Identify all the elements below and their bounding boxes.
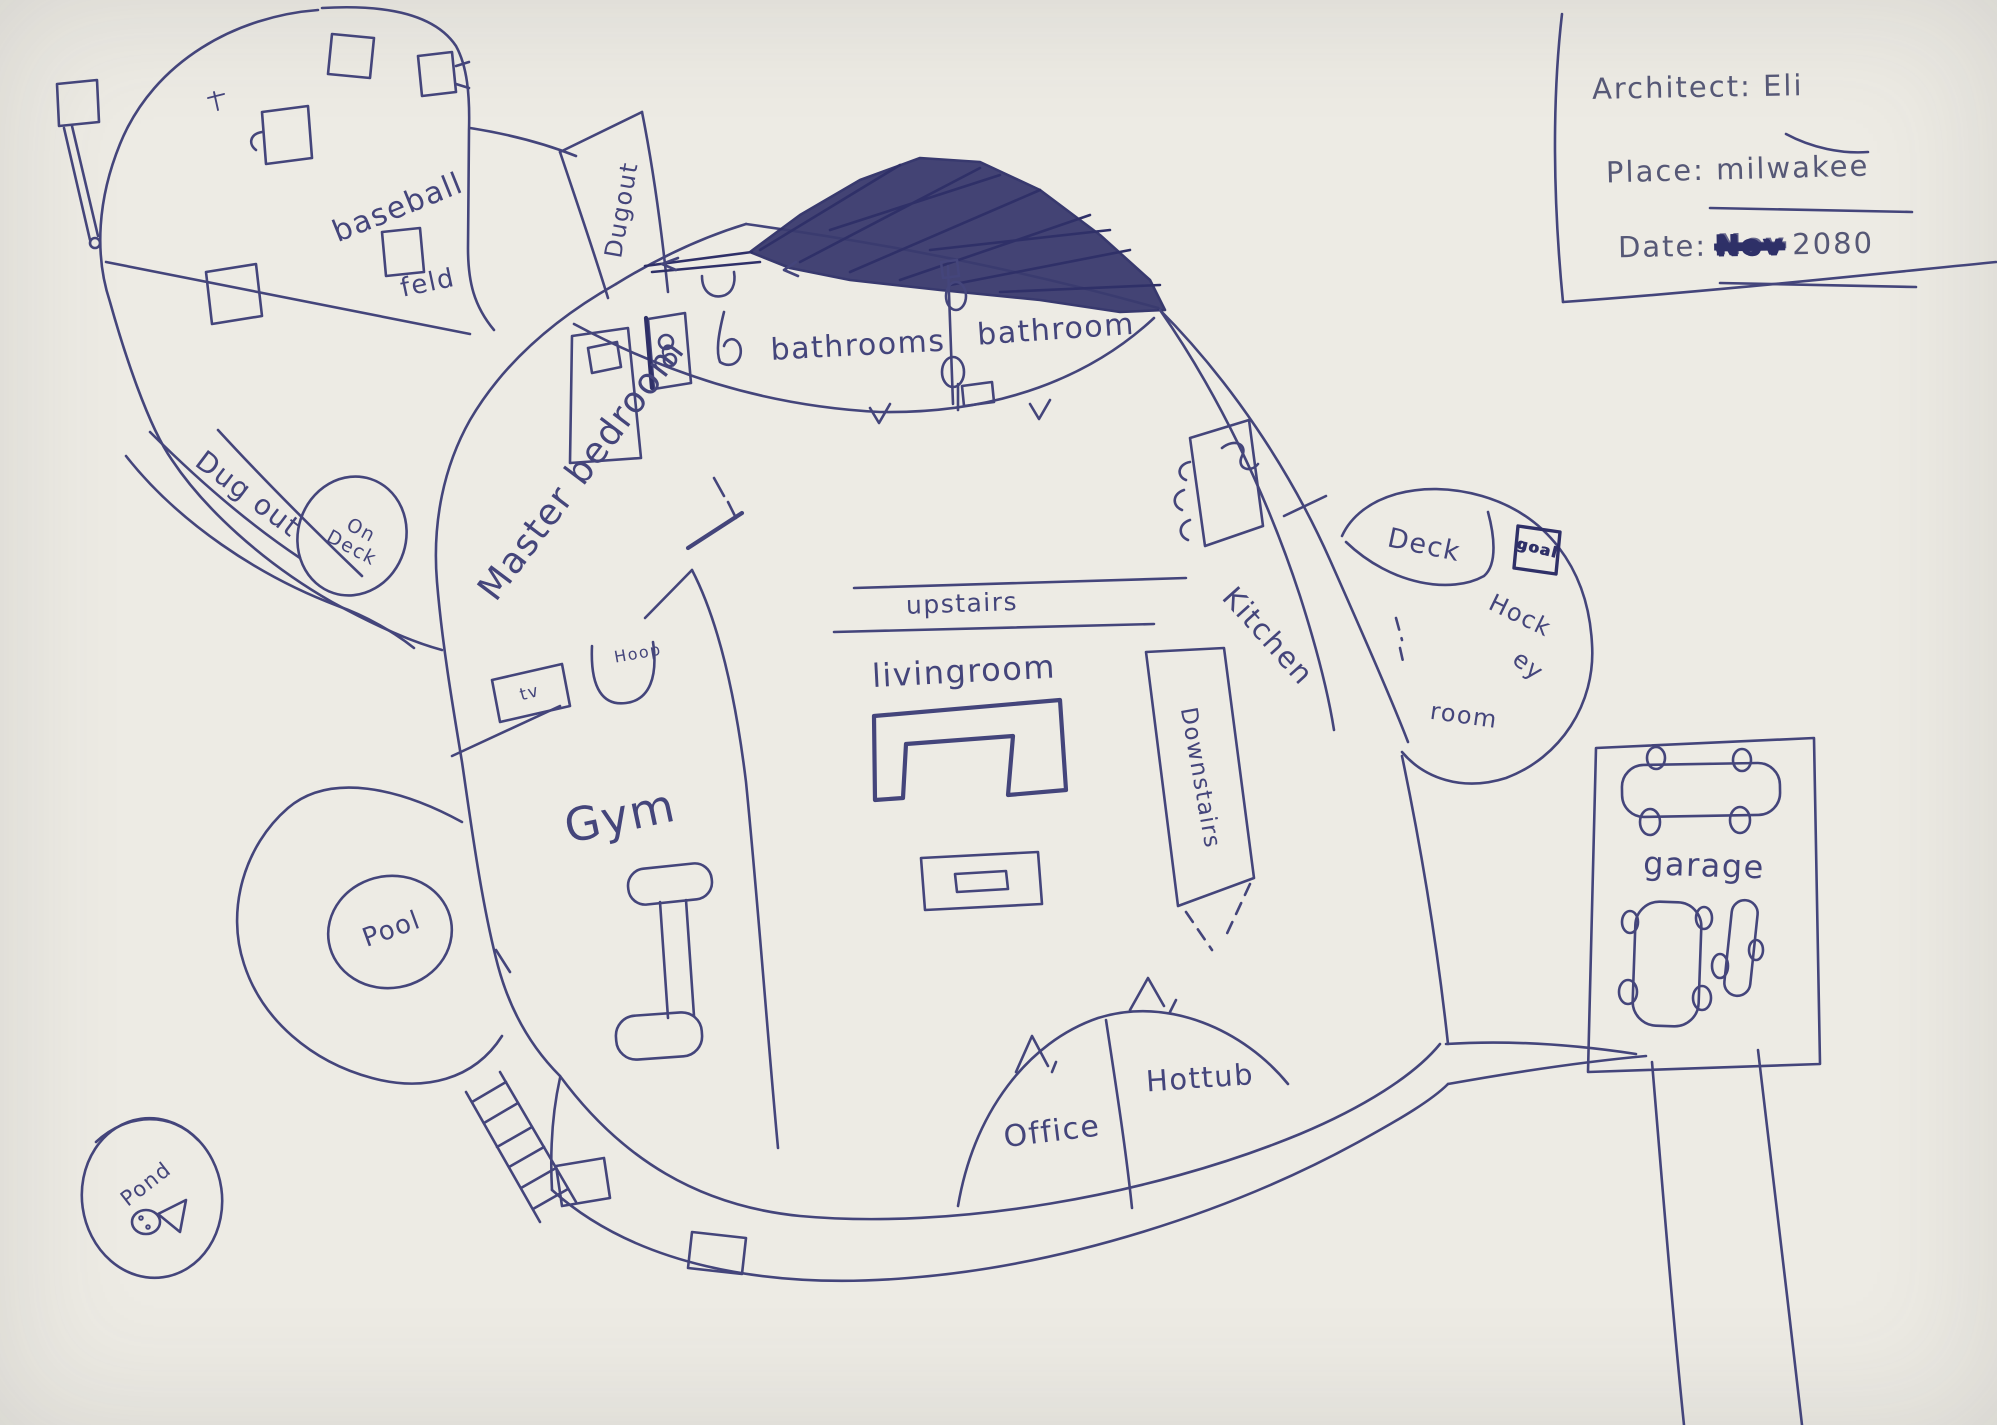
hockey-room-drawing bbox=[1342, 489, 1592, 784]
floor-plan-drawing bbox=[0, 0, 1997, 1425]
baseball-field-drawing-stroke bbox=[208, 92, 224, 110]
pond-drawing-stroke bbox=[158, 1200, 186, 1232]
house-outline-stroke bbox=[1402, 756, 1448, 1044]
date-month-scribbled: Nov bbox=[1715, 227, 1785, 262]
garage-drawing-stroke bbox=[1693, 986, 1711, 1010]
title-place-row: Place: milwakee bbox=[1606, 149, 1870, 190]
gym-drawing bbox=[452, 642, 714, 1061]
label-hottub: Hottub bbox=[1145, 1059, 1255, 1097]
walkway-drawing-stroke bbox=[1446, 1042, 1636, 1054]
office-hottub-drawing-stroke bbox=[958, 1011, 1288, 1206]
fish-drawing bbox=[132, 1210, 160, 1234]
title-date-row: Date:Nov2080 bbox=[1618, 226, 1875, 264]
bike-drawing bbox=[1723, 899, 1759, 997]
master-bedroom-drawing-stroke bbox=[714, 478, 736, 518]
master-bedroom-drawing-stroke bbox=[692, 570, 778, 1148]
garage-drawing bbox=[1588, 738, 1820, 1072]
scribble-shading bbox=[645, 158, 1165, 312]
paper-sheet: baseball feld Dugout Dug out On Deck Mas… bbox=[0, 0, 1997, 1425]
kitchen-drawing-stroke bbox=[1284, 496, 1326, 516]
office-hottub-drawing-stroke bbox=[1106, 1020, 1132, 1208]
dugout-top-band-stroke bbox=[560, 112, 642, 152]
pond-drawing-stroke bbox=[146, 1225, 150, 1229]
title-box-frame-stroke bbox=[1555, 14, 1563, 302]
house-outline-stroke bbox=[616, 224, 746, 284]
baseball-field-drawing-stroke bbox=[100, 10, 442, 650]
office-hottub-drawing-stroke bbox=[1130, 978, 1176, 1012]
label-garage: garage bbox=[1643, 847, 1766, 885]
title-box-frame-stroke bbox=[1710, 208, 1912, 212]
base-square bbox=[418, 52, 456, 96]
pond-drawing-stroke bbox=[96, 1119, 198, 1142]
title-architect-row: Architect: Eli bbox=[1592, 68, 1804, 106]
baseball-field-drawing-stroke bbox=[64, 126, 98, 240]
walkway-drawing-stroke bbox=[552, 1084, 1448, 1281]
baseball-field-drawing-stroke bbox=[90, 238, 100, 248]
pond-drawing-stroke bbox=[139, 1216, 143, 1220]
base-square bbox=[382, 228, 424, 276]
pillow-drawing bbox=[588, 342, 621, 373]
label-upstairs: upstairs bbox=[906, 589, 1019, 619]
office-hottub-drawing bbox=[958, 978, 1288, 1208]
car-drawing bbox=[1632, 901, 1702, 1027]
bathrooms-drawing-stroke bbox=[702, 272, 735, 296]
place-label: Place: bbox=[1606, 153, 1706, 190]
house-outline-stroke bbox=[560, 1044, 1440, 1219]
pond-drawing bbox=[72, 1109, 233, 1287]
master-bedroom-drawing-stroke bbox=[688, 513, 742, 548]
walkway-drawing bbox=[551, 1042, 1646, 1280]
driveway-drawing-stroke bbox=[1758, 1050, 1802, 1425]
architect-label: Architect: bbox=[1592, 69, 1752, 106]
bathrooms-drawing-stroke bbox=[962, 382, 994, 406]
driveway-drawing-stroke bbox=[1652, 1062, 1684, 1425]
baseball-field-drawing-stroke bbox=[251, 132, 262, 150]
gym-drawing-stroke bbox=[452, 706, 560, 756]
master-bedroom-drawing-stroke bbox=[645, 570, 692, 618]
living-room-drawing bbox=[834, 578, 1186, 910]
base-square bbox=[262, 106, 312, 164]
barbell-drawing bbox=[626, 862, 713, 907]
bathrooms-drawing-stroke bbox=[718, 312, 741, 365]
kitchen-drawing-stroke bbox=[1175, 462, 1190, 540]
date-year: 2080 bbox=[1792, 226, 1874, 261]
date-label: Date: bbox=[1618, 229, 1708, 265]
gym-drawing-stroke bbox=[615, 1011, 704, 1061]
flag-drawing bbox=[57, 80, 99, 126]
living-room-drawing-stroke bbox=[955, 871, 1008, 892]
pond-drawing-stroke bbox=[72, 1109, 233, 1287]
stove-drawing bbox=[1190, 420, 1263, 546]
title-box-frame-stroke bbox=[1563, 262, 1996, 302]
house-outline-stroke bbox=[436, 284, 616, 1076]
driveway-drawing bbox=[1652, 1050, 1802, 1425]
couch-drawing bbox=[874, 700, 1066, 800]
garage-drawing-stroke bbox=[1730, 807, 1750, 833]
garage-drawing-stroke bbox=[1640, 809, 1660, 835]
garage-drawing-stroke bbox=[1733, 749, 1751, 771]
dugout-top-band-stroke bbox=[560, 152, 608, 298]
garage-drawing-stroke bbox=[1749, 940, 1763, 960]
hockey-room-drawing-stroke bbox=[1342, 489, 1592, 784]
downstairs-band-stroke bbox=[1186, 884, 1250, 950]
ladder-drawing bbox=[466, 1072, 576, 1222]
garage-drawing-stroke bbox=[1696, 907, 1712, 929]
place-value: milwakee bbox=[1716, 149, 1870, 187]
gym-drawing-stroke bbox=[660, 900, 694, 1018]
base-square bbox=[328, 34, 374, 78]
coffee-table-drawing bbox=[921, 852, 1042, 910]
architect-name: Eli bbox=[1763, 68, 1804, 103]
hockey-room-drawing-stroke bbox=[1396, 618, 1404, 666]
base-square bbox=[206, 264, 262, 324]
scribble-shading-stroke bbox=[645, 252, 760, 272]
